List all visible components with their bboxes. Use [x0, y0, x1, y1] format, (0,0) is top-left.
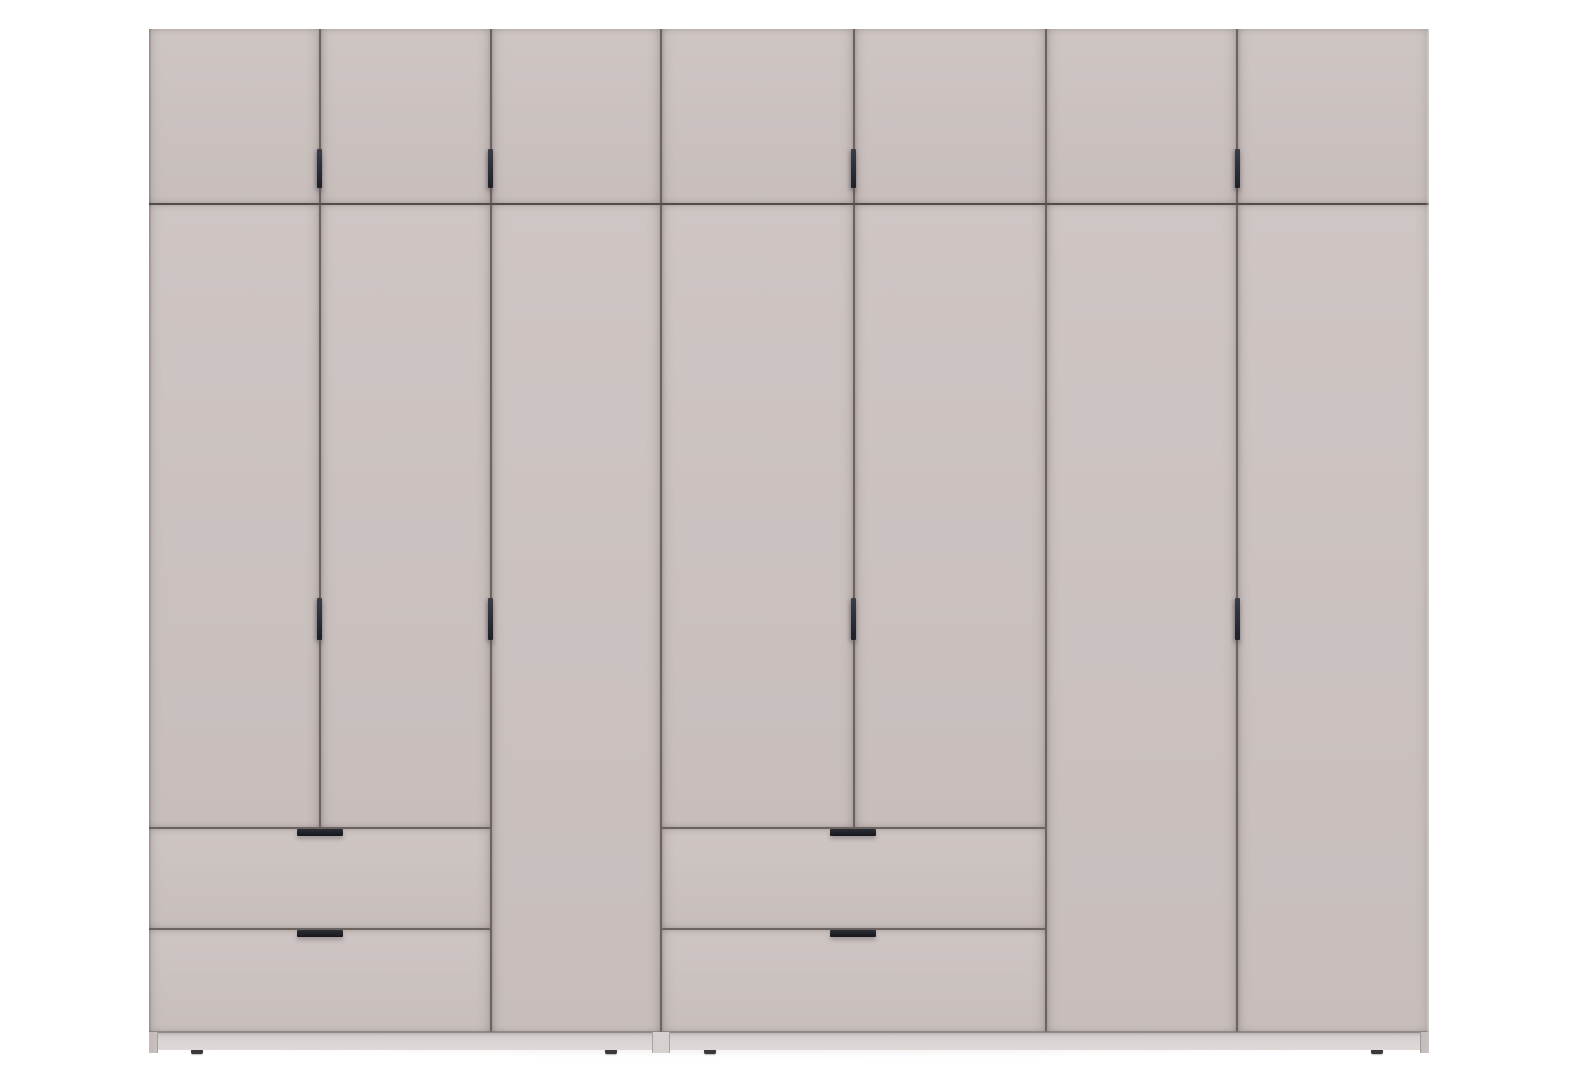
tall-wardrobe-door-6 [1047, 205, 1236, 1032]
product-image-canvas [0, 0, 1577, 1080]
drawer-front-right-lower [662, 930, 1045, 1032]
drawer-front-left-lower [149, 930, 490, 1032]
drawer-handle-left-lower [297, 930, 343, 937]
top-cabinet-door-1 [149, 29, 319, 203]
wardrobe-door-4 [662, 205, 853, 827]
top-cabinet-door-5 [855, 29, 1045, 203]
tall-wardrobe-door-7 [1238, 205, 1429, 1032]
top-cabinet-door-7 [1238, 29, 1429, 203]
top-cabinet-door-3 [492, 29, 660, 203]
door-handle-top-1 [317, 149, 322, 188]
door-handle-top-2 [488, 149, 493, 188]
door-handle-main-2 [488, 598, 493, 640]
drawer-handle-left-upper [297, 829, 343, 836]
door-handle-main-1 [317, 598, 322, 640]
side-panel-leg-right [1420, 1032, 1429, 1053]
door-handle-main-6 [1235, 598, 1240, 640]
top-cabinet-door-4 [662, 29, 853, 203]
side-panel-leg-left [149, 1032, 158, 1053]
wardrobe-door-1 [149, 205, 319, 827]
wardrobe-door-2 [321, 205, 490, 827]
door-handle-top-4 [851, 149, 856, 188]
drawer-front-right-upper [662, 829, 1045, 928]
tall-wardrobe-door-3 [492, 205, 660, 1032]
bottom-edge-line [149, 1031, 1429, 1033]
top-cabinet-door-6 [1047, 29, 1236, 203]
door-handle-main-4 [851, 598, 856, 640]
plinth [158, 1032, 1420, 1050]
top-cabinet-door-2 [321, 29, 490, 203]
door-handle-top-6 [1235, 149, 1240, 188]
drawer-front-left-upper [149, 829, 490, 928]
drawer-handle-right-upper [830, 829, 876, 836]
unit-seam-panels [652, 1032, 670, 1053]
top-section-divider-line [149, 203, 1429, 205]
wardrobe [149, 29, 1429, 1032]
drawer-handle-right-lower [830, 930, 876, 937]
wardrobe-door-5 [855, 205, 1045, 827]
